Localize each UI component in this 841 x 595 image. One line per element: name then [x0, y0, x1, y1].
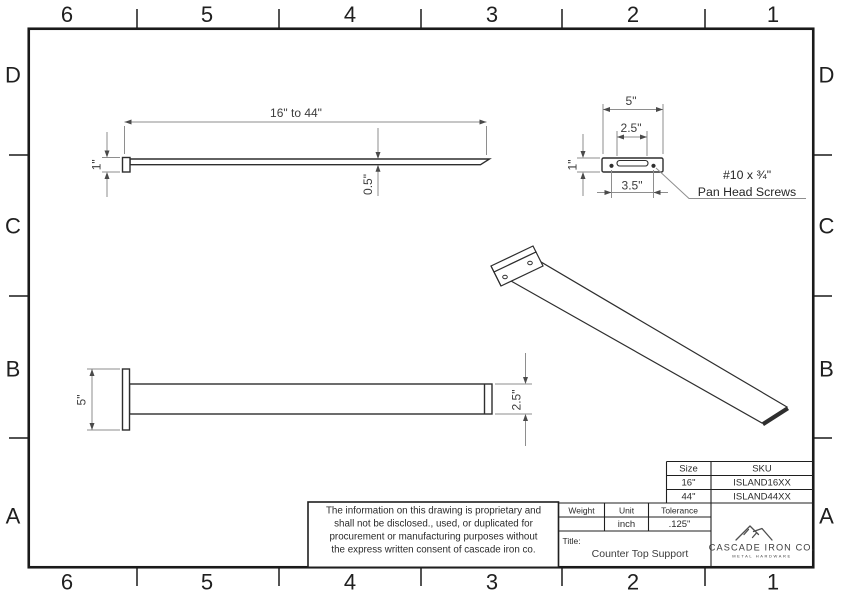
top-view-bar [130, 384, 493, 414]
disclaimer-line-4: the express written consent of cascade i… [331, 545, 535, 556]
plate-width-label: 5" [626, 94, 637, 108]
plate-height-dim: 1" [566, 134, 601, 196]
hole-spacing-dim: 3.5" [597, 170, 668, 198]
screw-note-line2: Pan Head Screws [698, 185, 796, 199]
top-view-bar-width-dim: 2.5" [495, 353, 532, 446]
side-view-bar [130, 159, 490, 165]
technical-drawing: 6 5 4 3 2 1 6 5 4 3 2 1 D C B A D C B A [0, 0, 841, 595]
top-view-plate-width-dim: 5" [75, 369, 121, 430]
side-view-plate-height-label: 1" [90, 159, 104, 170]
zone-row-d-left: D [5, 63, 21, 88]
top-view-bar-width-label: 2.5" [510, 390, 524, 411]
zone-row-a-right: A [819, 504, 834, 529]
plate-detail-view: 5" 2.5" 1" 3.5 [566, 94, 807, 199]
unit-value: inch [618, 519, 635, 530]
zone-row-d-right: D [819, 63, 835, 88]
slot-width-label: 2.5" [621, 121, 642, 135]
zone-col-5-bottom: 5 [201, 570, 213, 595]
slot-width-dim: 2.5" [617, 121, 647, 140]
zone-col-2-top: 2 [627, 2, 639, 27]
side-view-length-dim: 16" to 44" [125, 106, 487, 155]
top-view: 5" 2.5" [75, 353, 533, 446]
disclaimer-line-3: procurement or manufacturing purposes wi… [329, 532, 537, 543]
screw-note-line1: #10 x ¾" [723, 168, 771, 182]
plate-width-dim: 5" [603, 94, 663, 112]
size-header: Size [679, 464, 697, 475]
iso-bar [511, 262, 787, 423]
company-tagline: METAL HARDWARE [732, 554, 792, 559]
top-view-plate [123, 369, 130, 430]
screw-callout: #10 x ¾" Pan Head Screws [656, 168, 806, 199]
title-block: The information on this drawing is propr… [308, 462, 815, 568]
disclaimer-line-2: shall not be disclosed., used, or duplic… [334, 519, 534, 530]
zone-col-6-top: 6 [61, 2, 73, 27]
zone-col-1-top: 1 [767, 2, 779, 27]
zone-col-3-top: 3 [486, 2, 498, 27]
zone-col-5-top: 5 [201, 2, 213, 27]
side-view-plate-height-dim: 1" [90, 132, 121, 197]
company-logo: CASCADE IRON CO. METAL HARDWARE [709, 526, 815, 559]
zone-row-c-left: C [5, 214, 21, 239]
disclaimer-line-1: The information on this drawing is propr… [326, 506, 541, 517]
zone-col-2-bottom: 2 [627, 570, 639, 595]
zone-row-b-left: B [6, 357, 21, 382]
side-view-thickness-label: 0.5" [361, 174, 375, 195]
detail-screw-hole-right [651, 164, 655, 168]
zone-row-b-right: B [819, 357, 834, 382]
company-name: CASCADE IRON CO. [709, 543, 815, 553]
zone-col-3-bottom: 3 [486, 570, 498, 595]
side-view-plate [123, 158, 131, 173]
size-row-2-sku: ISLAND44XX [733, 492, 791, 503]
tolerance-header: Tolerance [661, 506, 698, 516]
drawing-title: Counter Top Support [592, 548, 689, 560]
zone-col-4-bottom: 4 [344, 570, 356, 595]
mountain-logo-icon [736, 526, 772, 540]
plate-height-label: 1" [566, 160, 580, 171]
isometric-view [0, 0, 789, 426]
tolerance-value: .125" [669, 519, 691, 530]
size-row-1-size: 16" [682, 478, 696, 489]
detail-screw-hole-left [609, 164, 613, 168]
drawing-page: 6 5 4 3 2 1 6 5 4 3 2 1 D C B A D C B A [0, 0, 841, 595]
weight-header: Weight [568, 506, 595, 516]
sku-header: SKU [752, 464, 772, 475]
title-label: Title: [563, 536, 581, 546]
zone-col-4-top: 4 [344, 2, 356, 27]
zone-row-a-left: A [6, 504, 21, 529]
border-ticks [9, 9, 832, 586]
zone-col-1-bottom: 1 [767, 570, 779, 595]
hole-spacing-label: 3.5" [622, 179, 643, 193]
zone-col-6-bottom: 6 [61, 570, 73, 595]
size-row-2-size: 44" [682, 492, 696, 503]
top-view-plate-width-label: 5" [75, 395, 89, 406]
side-view-length-label: 16" to 44" [270, 106, 322, 120]
size-row-1-sku: ISLAND16XX [733, 478, 791, 489]
side-view: 16" to 44" 1" 0.5" [90, 106, 490, 197]
unit-header: Unit [619, 506, 635, 516]
zone-row-c-right: C [819, 214, 835, 239]
detail-plate-slot [617, 161, 648, 167]
